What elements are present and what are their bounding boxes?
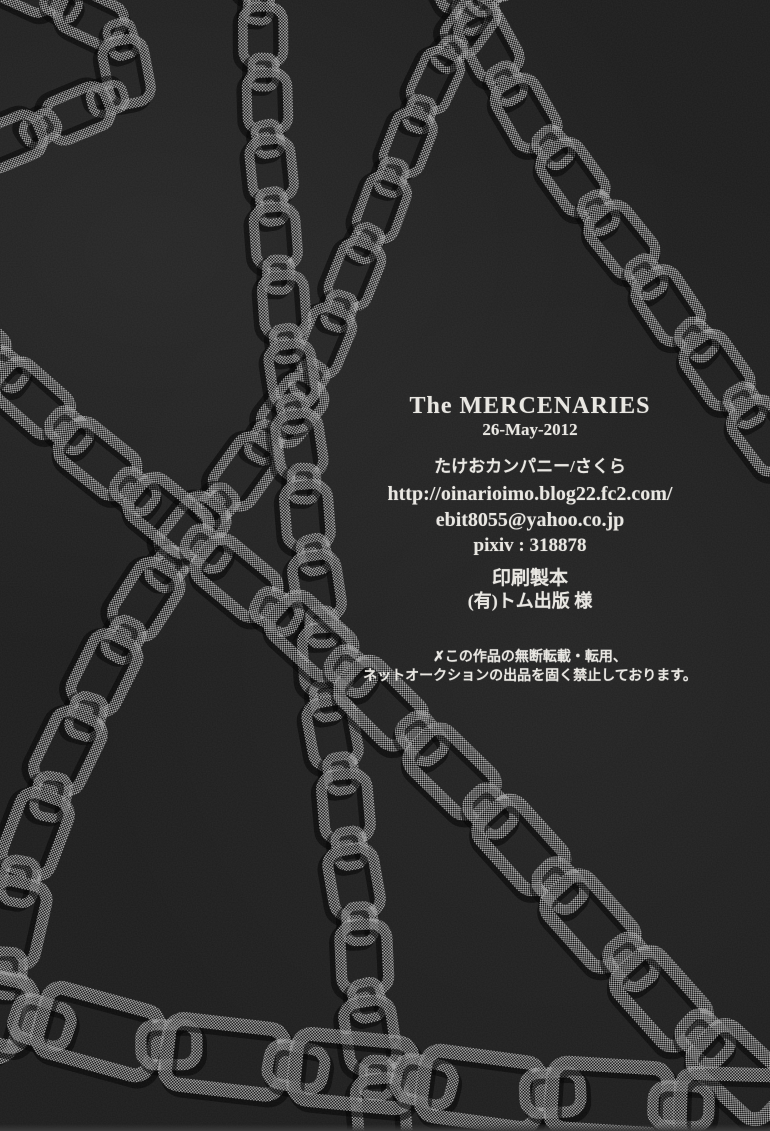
doujin-title: The MERCENARIES <box>340 392 720 420</box>
printing-heading: 印刷製本 <box>340 568 720 590</box>
copyright-warning: ✗この作品の無断転載・転用、 ネットオークションの出品を固く禁止しております。 <box>340 648 720 686</box>
release-date: 26-May-2012 <box>340 420 720 440</box>
colophon-page: The MERCENARIES 26-May-2012 たけおカンパニー/さくら… <box>0 0 770 1131</box>
credits-block: The MERCENARIES 26-May-2012 たけおカンパニー/さくら… <box>340 392 720 686</box>
warning-line-2: ネットオークションの出品を固く禁止しております。 <box>340 667 720 686</box>
chain-strand-A <box>0 0 154 176</box>
warning-line-1: ✗この作品の無断転載・転用、 <box>340 648 720 667</box>
email-address: ebit8055@yahoo.co.jp <box>340 508 720 532</box>
website-url: http://oinarioimo.blog22.fc2.com/ <box>340 481 720 507</box>
page-bottom-edge <box>0 1124 770 1131</box>
pixiv-id: pixiv : 318878 <box>340 535 720 557</box>
printer-name: (有)トム出版 様 <box>340 590 720 613</box>
circle-name: たけおカンパニー/さくら <box>340 456 720 477</box>
